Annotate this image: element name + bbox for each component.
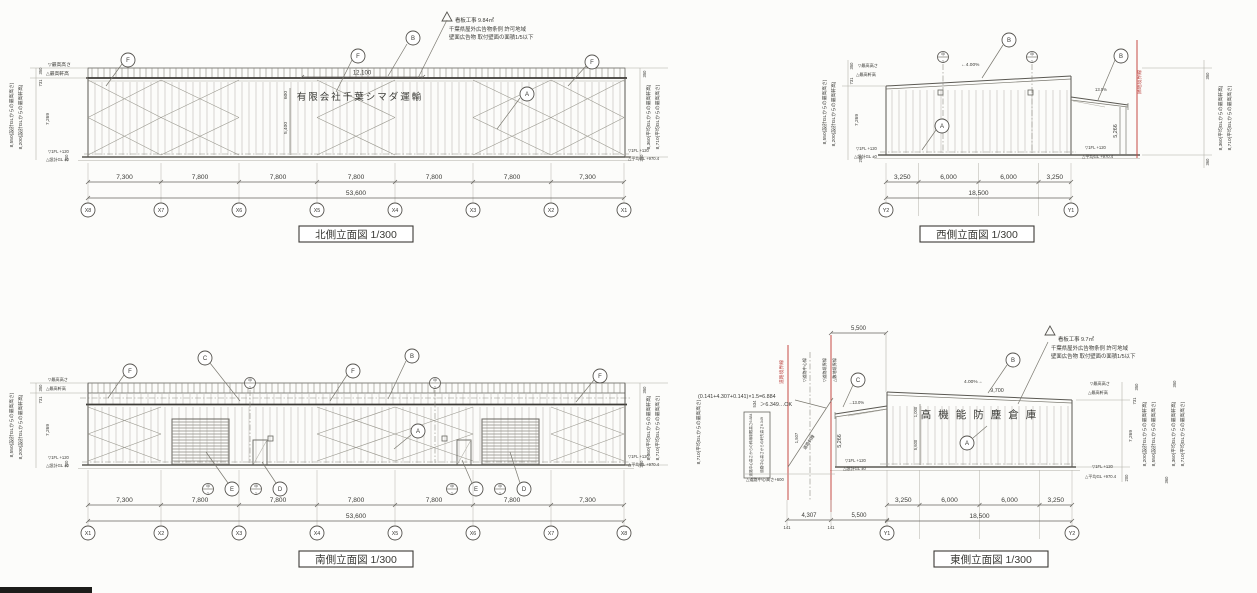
sign-height-dim: 600 bbox=[283, 91, 289, 99]
dim-label: 141 bbox=[828, 525, 836, 530]
dim-label: 350 bbox=[1172, 380, 1177, 388]
callout-letter: A bbox=[525, 92, 529, 98]
callout-letter: A bbox=[416, 429, 420, 435]
datum-marker: 甲 1 bbox=[203, 484, 214, 496]
dim-label: 1,000 bbox=[913, 406, 918, 417]
canopy-slope-label: 13.0% bbox=[1095, 87, 1107, 92]
callout-letter: A bbox=[940, 124, 944, 130]
datum-label: 1 bbox=[255, 492, 257, 496]
dim-label: 3,250 bbox=[1048, 497, 1065, 504]
floor-level-label: ▽1FL +120 bbox=[1085, 145, 1107, 150]
dim-label: 6,000 bbox=[1001, 497, 1018, 504]
x-bracing bbox=[88, 80, 161, 155]
sign-note-line1: 看板工事 9.84㎡ bbox=[455, 16, 495, 24]
datum-label: 甲 bbox=[248, 378, 252, 383]
grid-label: Y1 bbox=[1068, 208, 1075, 214]
sign-note-line3: 壁面広告物 取付壁面の面積1/5以下 bbox=[1051, 352, 1136, 360]
grid-label: X5 bbox=[392, 531, 399, 537]
datum-label: 甲 bbox=[498, 484, 502, 489]
dim-label: 360 bbox=[1164, 476, 1169, 484]
sign-note-line2: 千葉県屋外広告物条例 許可地域 bbox=[1051, 344, 1129, 352]
grid-label: Y1 bbox=[884, 531, 891, 537]
total-dim-label: 18,500 bbox=[969, 513, 990, 520]
company-sign-text: 有限会社千葉シマダ運輸 bbox=[297, 91, 424, 103]
dim-label: 5,600 bbox=[913, 439, 918, 450]
datum-label: 甲 bbox=[433, 378, 437, 383]
callout-letter: E bbox=[474, 487, 478, 493]
extension-lines bbox=[887, 470, 1072, 539]
slant-check-formula: (0.141+4.307+0.141)×1.5=6.884 bbox=[698, 394, 776, 400]
dim-label: 7,800 bbox=[270, 497, 287, 504]
height-note: 8,360(平均GLからの最高軒高) bbox=[645, 84, 652, 149]
dim-label: 7,269 bbox=[854, 114, 860, 126]
dim-label: 7,800 bbox=[270, 174, 287, 181]
design-gl-label: △設計GL ±0 bbox=[854, 153, 877, 160]
dim-label: 7,300 bbox=[116, 174, 133, 181]
grid-label: X7 bbox=[158, 208, 165, 214]
grid-label: X1 bbox=[621, 208, 628, 214]
dim-label: 5,266 bbox=[837, 434, 843, 448]
dim-label: 7,269 bbox=[45, 424, 51, 436]
dim-label: 200 bbox=[1124, 474, 1129, 482]
height-note: 8,710(平均GLからの最高高さ) bbox=[1226, 85, 1233, 150]
datum-label: 甲 bbox=[206, 484, 210, 489]
dim-label: 6,000 bbox=[941, 497, 958, 504]
drawing-title: 北側立面図 1/300 bbox=[315, 228, 397, 241]
dim-label: 350 bbox=[849, 62, 854, 70]
wall-siding bbox=[95, 407, 620, 463]
sign-note-line3: 壁面広告物 取付壁面の面積1/5以下 bbox=[449, 33, 534, 41]
callout-letter: B bbox=[1011, 358, 1015, 364]
dim-label: 731 bbox=[38, 79, 43, 87]
callout-letter: D bbox=[522, 487, 527, 493]
grid-label: X1 bbox=[85, 531, 92, 537]
dim-label: 7,800 bbox=[192, 174, 209, 181]
callout-letter: F bbox=[356, 54, 360, 60]
datum-label: 1 bbox=[249, 386, 251, 390]
canopy-slope-label: →13.0% bbox=[848, 400, 864, 405]
height-note: 8,200(設計GLからの最高軒高) bbox=[830, 81, 837, 146]
dim-label: 350 bbox=[642, 386, 647, 394]
sign-note-line2: 千葉県屋外広告物条例 許可地域 bbox=[449, 25, 527, 33]
x-bracing bbox=[317, 407, 395, 461]
grid-label: X6 bbox=[236, 208, 243, 214]
max-eave-label: △最高軒高 bbox=[46, 70, 69, 77]
dim-label: 360 bbox=[1205, 158, 1210, 166]
drawing-canvas: 有限会社千葉シマダ運輸 12,100 600 5,400 看板工事 9.84㎡ … bbox=[0, 0, 1257, 593]
dim-label: 7,269 bbox=[1128, 430, 1134, 442]
datum-label: 1 bbox=[942, 60, 944, 64]
dim-label: 350 bbox=[38, 384, 43, 392]
roof-band-ticks bbox=[92, 383, 620, 393]
wall-siding bbox=[892, 90, 1067, 153]
dim-label: 7,300 bbox=[116, 497, 133, 504]
floor-level-label: ▽1FL +120 bbox=[48, 149, 70, 154]
datum-marker: 甲 1 bbox=[1027, 52, 1038, 154]
height-note: 8,550(設計GLからの最高高さ) bbox=[8, 392, 15, 457]
elevation-drawing-sheet: 有限会社千葉シマダ運輸 12,100 600 5,400 看板工事 9.84㎡ … bbox=[0, 0, 1257, 593]
callout-letter: E bbox=[230, 487, 234, 493]
slant-check-result: ＞6.349…OK bbox=[760, 402, 792, 408]
datum-label: 1 bbox=[1031, 60, 1033, 64]
grid-label: X4 bbox=[314, 531, 321, 537]
datum-label: 1 bbox=[207, 492, 209, 496]
grid-label: X2 bbox=[158, 531, 165, 537]
road-height-note: 道路中心高さからの斜線制限高さ6.884 bbox=[748, 414, 753, 477]
datum-label: 甲 bbox=[450, 484, 454, 489]
max-height-label: ▽最高高さ bbox=[858, 62, 878, 69]
average-gl-label: △平均GL +970.4 bbox=[1082, 153, 1114, 160]
height-note: 8,550(設計GLからの最高高さ) bbox=[821, 79, 828, 144]
datum-label: 1 bbox=[451, 492, 453, 496]
drawing-title: 南側立面図 1/300 bbox=[315, 553, 397, 566]
dim-label: 534 bbox=[752, 400, 757, 408]
datum-label: 1 bbox=[499, 492, 501, 496]
dim-label: 6,000 bbox=[940, 174, 957, 181]
average-gl-label: △平均GL +970.4 bbox=[628, 155, 660, 162]
dim-label: 3,250 bbox=[895, 497, 912, 504]
dim-label: 3,250 bbox=[1047, 174, 1064, 181]
callout-letter: C bbox=[203, 356, 208, 362]
callout-letter: F bbox=[126, 58, 130, 64]
callout-letter: D bbox=[278, 487, 283, 493]
dim-label: 141 bbox=[784, 525, 792, 530]
callout-letter: B bbox=[410, 354, 414, 360]
road-height-note: 道路中心高さからの軒先高さ6.349 bbox=[759, 417, 764, 473]
site-boundary-label: △敷地境界線 bbox=[831, 357, 838, 382]
grid-label: Y2 bbox=[883, 208, 890, 214]
floor-level-label: ▽1FL +120 bbox=[1092, 464, 1114, 469]
west-elevation: 13.0% 5,266 隣地境界線 ←4.00% 甲 1 甲 1 B B A ▽… bbox=[821, 33, 1233, 242]
wall-vent bbox=[938, 90, 943, 95]
max-eave-label: △最高軒高 bbox=[856, 71, 876, 78]
max-height-label: ▽最高高さ bbox=[48, 61, 71, 68]
max-height-label: ▽最高高さ bbox=[48, 376, 68, 383]
dim-label: 7,800 bbox=[348, 497, 365, 504]
grid-label: X4 bbox=[392, 208, 399, 214]
roof-slope-label: ←4.00% bbox=[961, 62, 980, 68]
boundary-line-label: 隣地境界線 bbox=[1136, 70, 1143, 94]
grid-label: X3 bbox=[470, 208, 477, 214]
callout-letter: F bbox=[598, 374, 602, 380]
grid-label: X6 bbox=[470, 531, 477, 537]
dim-label: 5,266 bbox=[1113, 124, 1119, 138]
dim-label: 6,000 bbox=[1000, 174, 1017, 181]
callout-letter: C bbox=[856, 378, 861, 384]
dim-label: 7,800 bbox=[426, 174, 443, 181]
drawing-title: 東側立面図 1/300 bbox=[950, 553, 1032, 566]
callout-letter: F bbox=[351, 369, 355, 375]
datum-marker: 甲 1 bbox=[495, 484, 506, 496]
dim-label: 7,300 bbox=[579, 174, 596, 181]
scan-edge-artifact bbox=[0, 587, 92, 593]
dim-label: 731 bbox=[1132, 397, 1137, 405]
height-note: 8,360(平均GLからの最高軒高) bbox=[1217, 85, 1224, 150]
height-note: 8,710(平均GLからの最高高さ) bbox=[654, 84, 661, 149]
max-height-label: ▽最高高さ bbox=[1090, 380, 1110, 387]
design-gl-label: △設計GL ±0 bbox=[46, 156, 69, 163]
boundary-line-label: 道路境界線 bbox=[778, 360, 785, 384]
dim-label: 9,700 bbox=[990, 388, 1004, 394]
dim-label: 350 bbox=[642, 70, 647, 78]
dim-label: 4,307 bbox=[801, 513, 817, 519]
grid-label: X2 bbox=[548, 208, 555, 214]
grid-label: X8 bbox=[85, 208, 92, 214]
callout-letter: F bbox=[128, 369, 132, 375]
dim-label: 7,269 bbox=[45, 113, 51, 125]
dim-label: 7,800 bbox=[192, 497, 209, 504]
warning-triangle-icon bbox=[1045, 326, 1055, 335]
wall-vent bbox=[442, 436, 447, 441]
datum-marker: 甲 1 bbox=[251, 484, 262, 496]
design-gl-label: △設計GL ±0 bbox=[843, 465, 866, 472]
height-note: 8,710(平均GLからの最高高さ) bbox=[654, 395, 661, 460]
datum-marker: 甲 1 bbox=[938, 52, 949, 154]
wall-vent bbox=[268, 436, 273, 441]
drawing-title: 西側立面図 1/300 bbox=[936, 228, 1018, 241]
height-note: 8,710(平均GLからの最高高さ) bbox=[1179, 401, 1186, 466]
average-gl-label: △平均GL +970.4 bbox=[628, 461, 660, 468]
building-sign-text: 高機能防塵倉庫 bbox=[921, 408, 1044, 421]
road-center-label: ▽道路中心線 bbox=[801, 357, 808, 382]
callout-letter: B bbox=[1119, 54, 1123, 60]
north-elevation: 有限会社千葉シマダ運輸 12,100 600 5,400 看板工事 9.84㎡ … bbox=[8, 12, 668, 242]
height-note: 8,200(設計GLからの最高軒高) bbox=[1141, 401, 1148, 466]
dim-label: 5,500 bbox=[851, 513, 867, 519]
roof-slope-label: 4.00%→ bbox=[964, 379, 982, 385]
floor-level-label: ▽1FL +120 bbox=[845, 458, 867, 463]
x-bracing bbox=[473, 80, 551, 155]
dim-label: 7,800 bbox=[348, 174, 365, 181]
grid-label: X8 bbox=[621, 531, 628, 537]
floor-level-label: ▽1FL +120 bbox=[48, 455, 70, 460]
east-elevation: 高機能防塵倉庫 →13.0% 5,266 ▽1FL +120 △設計GL ±0 … bbox=[695, 326, 1186, 567]
dim-label: 5,500 bbox=[851, 326, 867, 332]
x-bracing bbox=[88, 407, 161, 461]
dim-label: 7,800 bbox=[504, 174, 521, 181]
grid-bubbles: X1 X2 X3 X4 X5 X6 X7 X8 bbox=[81, 526, 631, 540]
callout-letter: A bbox=[965, 441, 969, 447]
sign-width-label: 12,100 bbox=[353, 71, 372, 77]
roll-shutter bbox=[172, 419, 229, 465]
average-gl-label: △平均GL +970.4 bbox=[1085, 473, 1117, 480]
height-note: 8,710(平均GLからの最高高さ) bbox=[695, 399, 702, 464]
grid-bubbles: X8 X7 X6 X5 X4 X3 X2 X1 bbox=[81, 203, 631, 217]
road-boundary-label: ▽道路境界線 bbox=[821, 357, 828, 382]
dim-label: 350 bbox=[1205, 72, 1210, 80]
total-dim-label: 53,600 bbox=[346, 513, 367, 520]
dim-label: 731 bbox=[38, 396, 43, 404]
floor-level-label: ▽1FL +120 bbox=[628, 454, 650, 459]
floor-level-label: ▽1FL +120 bbox=[856, 146, 878, 151]
datum-label: 1 bbox=[434, 386, 436, 390]
datum-label: 甲 bbox=[1030, 52, 1034, 57]
height-note: 8,360(平均GLからの最高軒高) bbox=[1170, 401, 1177, 466]
dim-label: 350 bbox=[38, 67, 43, 75]
dim-label: 7,800 bbox=[426, 497, 443, 504]
height-note: 8,550(設計GLからの最高高さ) bbox=[1150, 401, 1157, 466]
floor-level-label: ▽1FL +120 bbox=[628, 148, 650, 153]
dim-label: 1,507 bbox=[794, 432, 799, 443]
x-bracing bbox=[395, 407, 473, 461]
max-eave-label: △最高軒高 bbox=[1088, 389, 1108, 396]
datum-label: 甲 bbox=[941, 52, 945, 57]
design-gl-label: △設計GL ±0 bbox=[46, 462, 69, 469]
dim-label: 731 bbox=[849, 77, 854, 85]
grid-label: X7 bbox=[548, 531, 555, 537]
dim-label: 7,800 bbox=[504, 497, 521, 504]
road-center-gl-label: △道路中心高さ+600 bbox=[746, 476, 784, 483]
datum-marker: 甲 1 bbox=[447, 484, 458, 496]
height-note: 8,200(設計GLからの最高軒高) bbox=[17, 394, 24, 459]
sign-note-line1: 看板工事 9.7㎡ bbox=[1058, 335, 1095, 343]
height-note: 8,360(平均GLからの最高軒高) bbox=[645, 395, 652, 460]
roll-shutter bbox=[482, 419, 539, 465]
dim-label: 350 bbox=[1134, 383, 1139, 391]
wall-height-dim: 5,400 bbox=[283, 122, 289, 134]
max-eave-label: △最高軒高 bbox=[46, 385, 66, 392]
grid-label: X3 bbox=[236, 531, 243, 537]
extension-lines bbox=[88, 470, 624, 539]
grid-label: Y2 bbox=[1069, 531, 1076, 537]
callout-letter: B bbox=[411, 36, 415, 42]
height-note: 8,200(設計GLからの最高軒高) bbox=[17, 84, 24, 149]
total-dim-label: 18,500 bbox=[968, 190, 989, 197]
callout-letter: F bbox=[590, 60, 594, 66]
callout-letter: B bbox=[1007, 38, 1011, 44]
warning-triangle-icon bbox=[442, 12, 452, 21]
dim-label: 7,300 bbox=[579, 497, 596, 504]
south-elevation: 甲 1 甲 1 F C F B F A 甲 1 E 甲 1 D bbox=[8, 349, 668, 567]
dim-label: 3,250 bbox=[894, 174, 911, 181]
total-dim-label: 53,600 bbox=[346, 190, 367, 197]
fascia-siding bbox=[92, 394, 617, 404]
datum-label: 甲 bbox=[254, 484, 258, 489]
grid-label: X5 bbox=[314, 208, 321, 214]
height-note: 8,550(設計GLからの最高高さ) bbox=[8, 82, 15, 147]
